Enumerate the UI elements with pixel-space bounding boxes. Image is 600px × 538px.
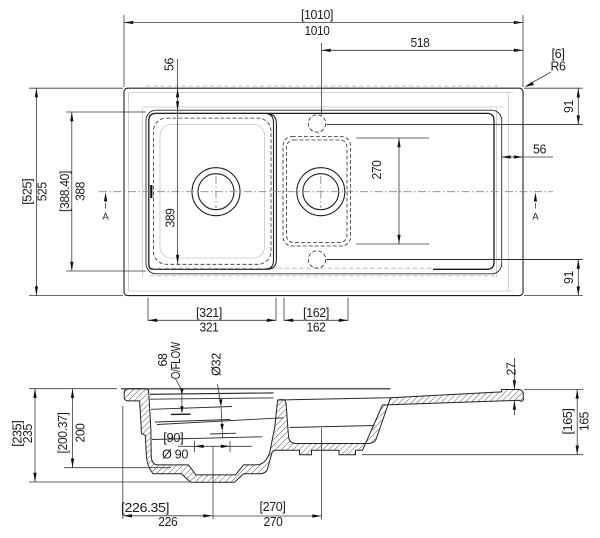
svg-text:91: 91 <box>561 100 576 113</box>
svg-text:388: 388 <box>73 182 88 201</box>
svg-text:O/FLOW: O/FLOW <box>168 341 183 379</box>
svg-text:525: 525 <box>35 182 50 201</box>
svg-text:Ø32: Ø32 <box>209 353 224 376</box>
svg-text:[388.40]: [388.40] <box>57 171 72 212</box>
svg-text:[525]: [525] <box>20 179 35 205</box>
svg-text:389: 389 <box>163 208 178 227</box>
svg-text:162: 162 <box>307 320 326 335</box>
svg-text:[200.37]: [200.37] <box>55 413 70 454</box>
svg-text:518: 518 <box>411 35 430 50</box>
svg-text:1010: 1010 <box>305 23 330 38</box>
svg-text:56: 56 <box>162 58 177 71</box>
svg-text:270: 270 <box>264 514 283 529</box>
svg-text:[321]: [321] <box>196 305 222 320</box>
svg-text:27: 27 <box>504 362 519 375</box>
svg-text:165: 165 <box>577 412 592 431</box>
svg-text:270: 270 <box>369 160 384 179</box>
svg-text:[270]: [270] <box>260 499 286 514</box>
svg-text:235: 235 <box>20 424 35 443</box>
svg-text:[90]: [90] <box>163 430 183 445</box>
svg-text:[226.35]: [226.35] <box>121 500 169 515</box>
svg-text:[1010]: [1010] <box>301 7 333 22</box>
svg-text:[165]: [165] <box>560 409 575 435</box>
svg-text:321: 321 <box>200 320 219 335</box>
svg-text:56: 56 <box>533 142 546 157</box>
svg-text:91: 91 <box>561 271 576 284</box>
svg-text:Ø 90: Ø 90 <box>162 447 188 462</box>
svg-text:200: 200 <box>73 423 88 442</box>
svg-text:A: A <box>102 212 109 223</box>
svg-text:R6: R6 <box>551 59 566 74</box>
svg-text:[162]: [162] <box>303 305 329 320</box>
svg-text:A: A <box>532 212 539 223</box>
svg-text:226: 226 <box>158 514 177 529</box>
